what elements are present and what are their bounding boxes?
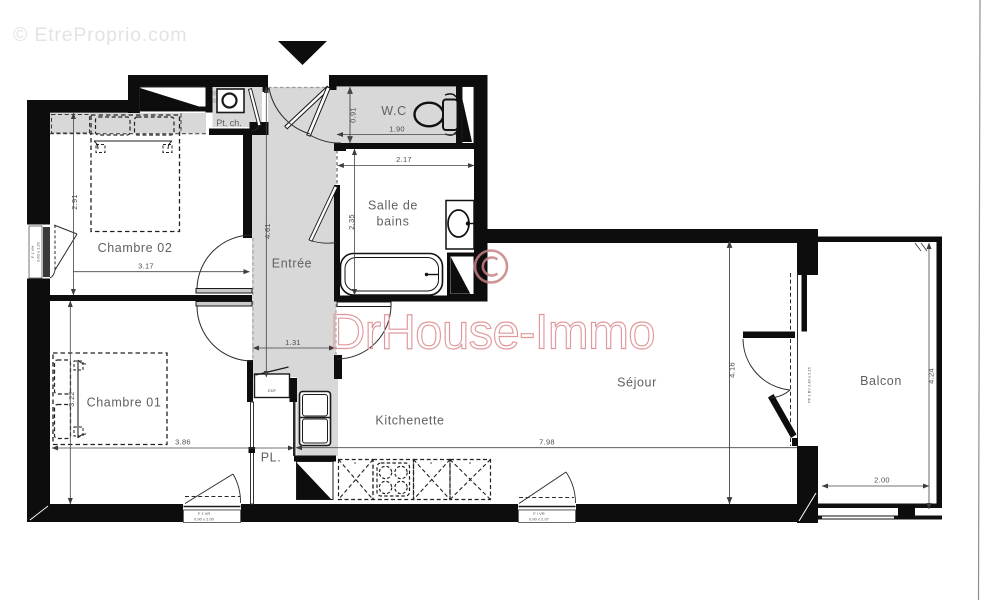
svg-text:2.00: 2.00 [874, 476, 890, 485]
svg-text:2.17: 2.17 [396, 155, 412, 164]
svg-text:Entrée: Entrée [272, 257, 312, 271]
svg-text:Pt. ch.: Pt. ch. [216, 118, 242, 128]
svg-text:0.60 x 1.20: 0.60 x 1.20 [36, 241, 41, 262]
svg-text:4.24: 4.24 [927, 368, 936, 384]
svg-text:3.22: 3.22 [67, 391, 76, 407]
svg-text:Chambre 01: Chambre 01 [87, 396, 162, 410]
svg-text:4.61: 4.61 [263, 223, 272, 239]
svg-text:DrHouse-Immo: DrHouse-Immo [330, 306, 655, 360]
svg-text:Balcon: Balcon [860, 374, 902, 388]
svg-text:EDF: EDF [268, 388, 277, 393]
svg-text:1.31: 1.31 [285, 338, 301, 347]
svg-text:Séjour: Séjour [617, 376, 657, 390]
svg-text:7.98: 7.98 [539, 438, 555, 447]
svg-text:a: a [430, 461, 432, 465]
svg-text:a: a [354, 461, 356, 465]
svg-text:Kitchenette: Kitchenette [375, 414, 444, 428]
svg-text:W.C: W.C [381, 104, 406, 118]
svg-text:F 1 VR: F 1 VR [198, 511, 211, 516]
svg-text:3.17: 3.17 [138, 262, 154, 271]
svg-text:0.90 x 2.00: 0.90 x 2.00 [194, 517, 215, 522]
svg-text:4.16: 4.16 [728, 362, 737, 378]
svg-text:3.86: 3.86 [175, 438, 191, 447]
svg-text:F 1 VH: F 1 VH [30, 246, 35, 259]
svg-text:1.90: 1.90 [389, 125, 405, 134]
svg-text:Chambre 02: Chambre 02 [98, 241, 173, 255]
svg-text:PF 1 BV 2.40 x 2.15: PF 1 BV 2.40 x 2.15 [807, 366, 812, 403]
svg-text:a: a [469, 461, 471, 465]
svg-text:© EtreProprio.com: © EtreProprio.com [13, 24, 187, 46]
svg-text:2.35: 2.35 [347, 214, 356, 230]
svg-text:F / VR: F / VR [533, 511, 544, 516]
svg-text:2.91: 2.91 [70, 194, 79, 210]
svg-text:Salle de: Salle de [368, 199, 418, 213]
svg-text:PL.: PL. [261, 451, 282, 465]
svg-text:bains: bains [377, 215, 410, 229]
svg-text:0.90 x 2.07: 0.90 x 2.07 [529, 517, 550, 522]
